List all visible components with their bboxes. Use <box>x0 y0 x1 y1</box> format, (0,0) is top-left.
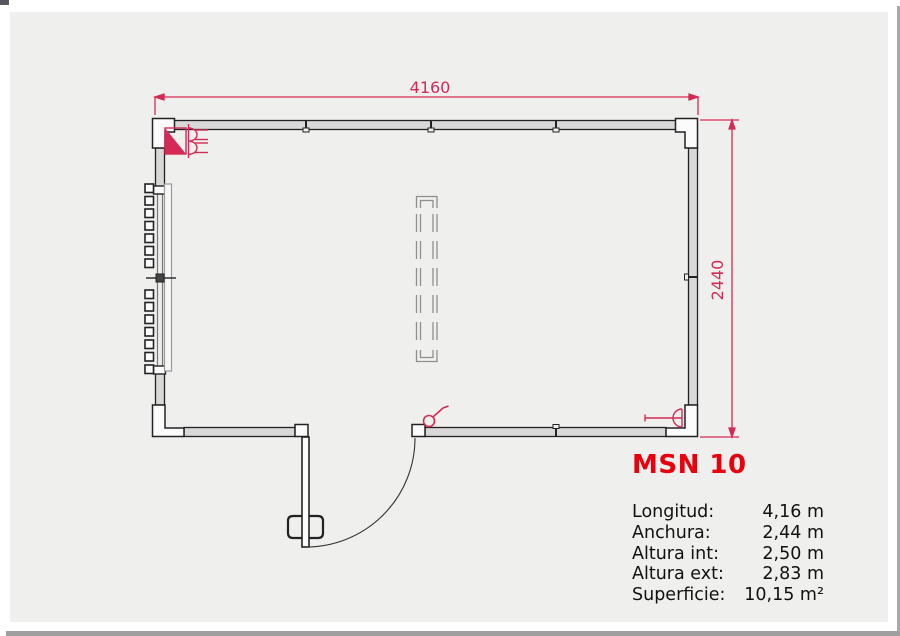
spec-label: Altura ext: <box>632 564 724 585</box>
dimension-lines <box>155 94 739 437</box>
wall-panel-joints <box>306 121 698 437</box>
door-leaf <box>302 437 309 547</box>
wall-left-upper <box>156 148 165 190</box>
door-handle-icon <box>288 516 302 538</box>
spec-value: 2,44 m <box>762 523 824 544</box>
wall-bottom-left <box>184 428 295 437</box>
spec-value: 10,15 m² <box>744 585 824 606</box>
spec-label: Anchura: <box>632 523 711 544</box>
spec-row-superficie: Superficie: 10,15 m² <box>632 585 824 606</box>
model-title: MSN 10 <box>632 450 824 480</box>
spec-row-altura-int: Altura int: 2,50 m <box>632 544 824 565</box>
door-key-icon <box>424 406 449 427</box>
spec-label: Superficie: <box>632 585 725 606</box>
wall-joint-notches <box>303 128 689 429</box>
spec-value: 2,83 m <box>762 564 824 585</box>
door-jambs <box>295 425 425 437</box>
spec-value: 4,16 m <box>762 502 824 523</box>
wall-top <box>174 121 676 130</box>
power-socket-icon <box>645 409 682 427</box>
spec-row-anchura: Anchura: 2,44 m <box>632 523 824 544</box>
spec-row-altura-ext: Altura ext: 2,83 m <box>632 564 824 585</box>
window-left <box>145 184 176 374</box>
wall-bottom-right <box>425 428 666 437</box>
corner-posts <box>153 119 698 437</box>
spec-row-longitud: Longitud: 4,16 m <box>632 502 824 523</box>
roof-beam-dashed-icon <box>417 197 438 362</box>
corner-post-bottom-left <box>153 405 185 437</box>
door-handle-icon <box>309 516 323 538</box>
spec-value: 2,50 m <box>762 544 824 565</box>
spec-label: Longitud: <box>632 502 714 523</box>
corner-post-top-right <box>676 119 698 149</box>
dimension-height-label: 2440 <box>708 260 727 301</box>
spec-panel: MSN 10 Longitud: 4,16 m Anchura: 2,44 m … <box>632 450 824 606</box>
dimension-width-label: 4160 <box>410 78 451 97</box>
walls <box>156 121 698 437</box>
wall-left-lower <box>156 370 165 405</box>
door <box>288 437 415 547</box>
page-edge-bottom <box>6 631 900 636</box>
spec-label: Altura int: <box>632 544 719 565</box>
